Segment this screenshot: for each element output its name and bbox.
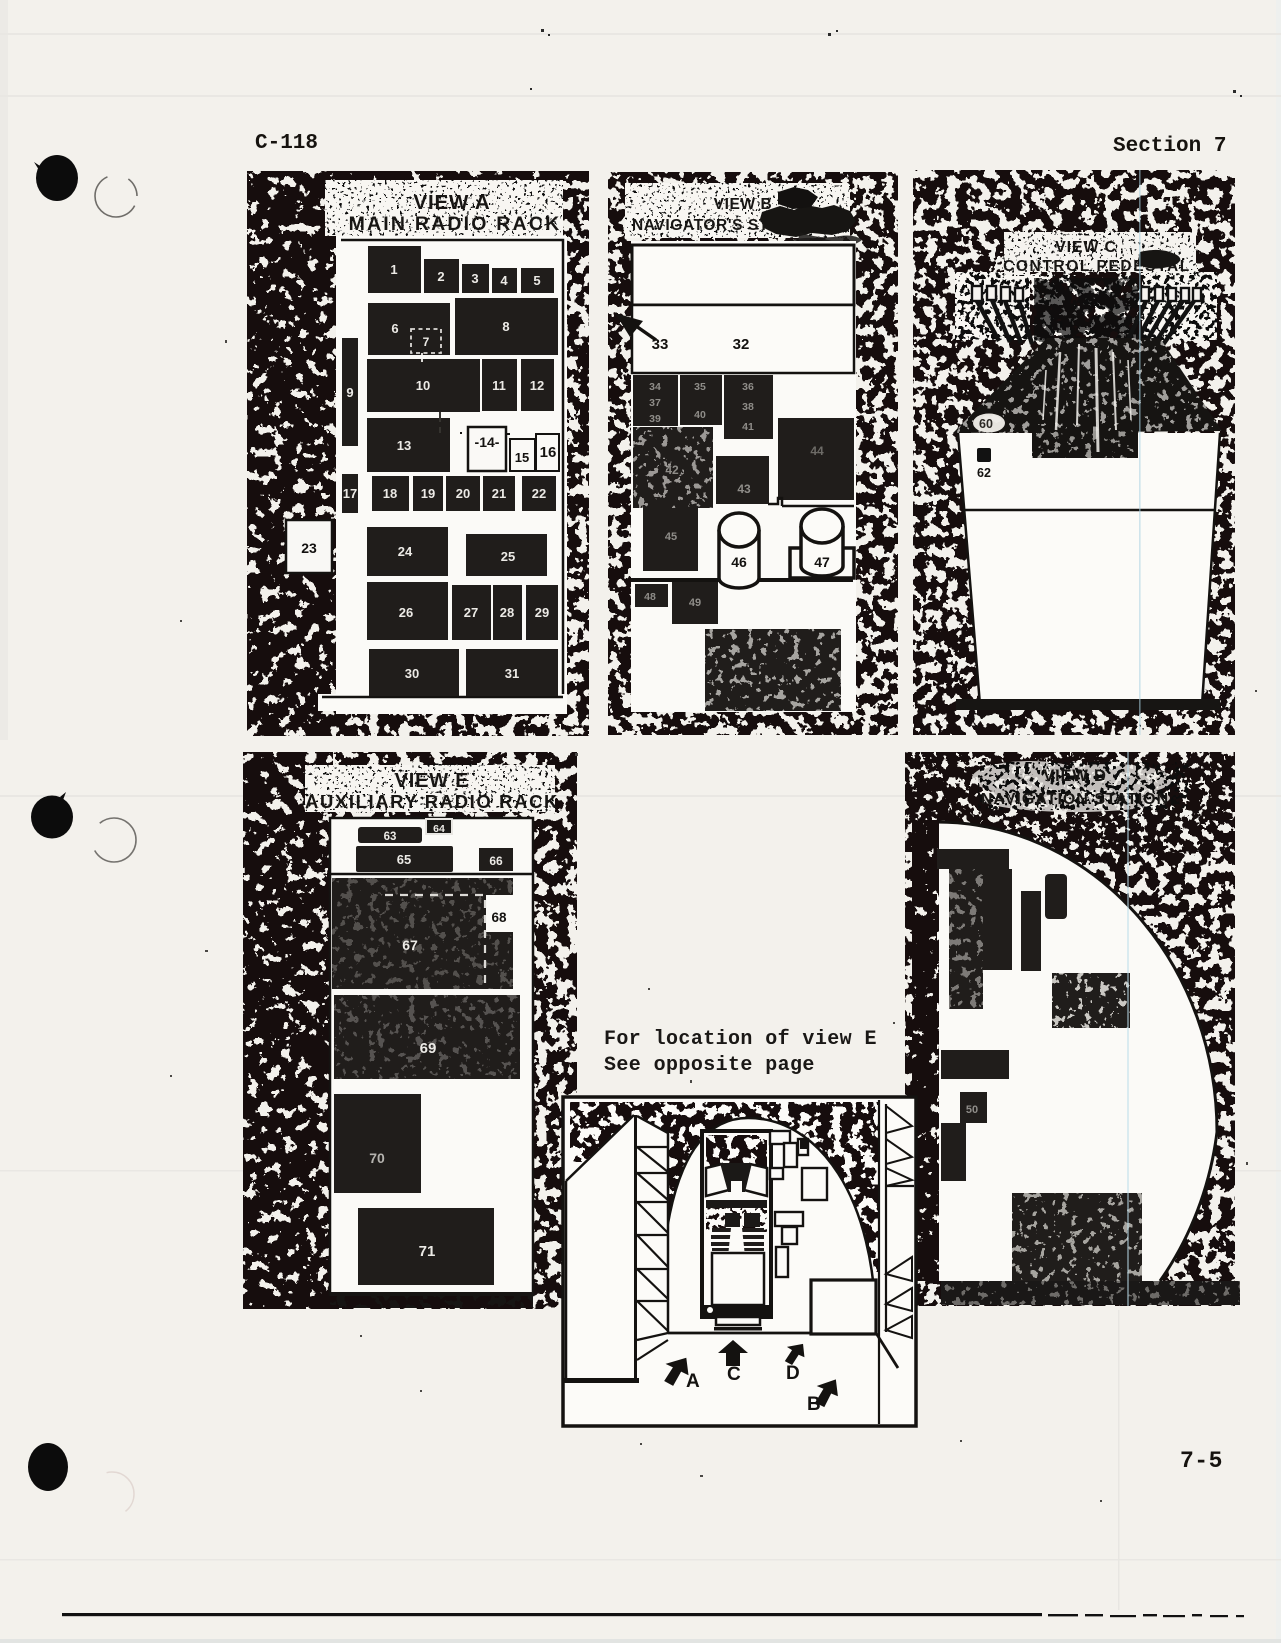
svg-text:38: 38 (742, 401, 754, 413)
svg-text:16: 16 (540, 444, 557, 461)
svg-text:47: 47 (814, 554, 830, 570)
svg-text:21: 21 (492, 486, 506, 501)
svg-text:A: A (686, 1371, 700, 1392)
svg-text:44: 44 (810, 444, 824, 458)
svg-text:10: 10 (416, 378, 430, 393)
svg-text:NAVIGATION STATION: NAVIGATION STATION (981, 791, 1169, 808)
svg-text:31: 31 (505, 666, 519, 681)
svg-text:40: 40 (694, 409, 706, 421)
svg-text:5: 5 (533, 273, 540, 288)
svg-text:67: 67 (402, 937, 418, 953)
svg-text:7-5: 7-5 (1180, 1448, 1223, 1474)
svg-text:C-118: C-118 (255, 132, 318, 155)
svg-text:13: 13 (397, 438, 411, 453)
svg-text:8: 8 (502, 319, 509, 334)
svg-text:VIEW B: VIEW B (714, 196, 773, 213)
svg-text:48: 48 (644, 591, 656, 603)
svg-text:2: 2 (437, 269, 444, 284)
svg-text:41: 41 (742, 421, 754, 433)
svg-text:64: 64 (433, 823, 445, 835)
svg-text:VIEW A: VIEW A (414, 191, 491, 214)
svg-text:66: 66 (489, 854, 503, 868)
svg-text:42: 42 (665, 463, 679, 477)
svg-text:26: 26 (399, 605, 413, 620)
svg-text:1: 1 (390, 262, 397, 277)
svg-text:27: 27 (464, 605, 478, 620)
svg-text:VIEW E: VIEW E (395, 770, 470, 792)
svg-text:28: 28 (500, 605, 514, 620)
svg-text:43: 43 (737, 482, 751, 496)
svg-text:68: 68 (491, 910, 507, 925)
svg-text:9: 9 (346, 385, 353, 400)
svg-text:34: 34 (649, 381, 661, 393)
svg-text:MAIN RADIO RACK: MAIN RADIO RACK (349, 213, 562, 235)
svg-text:37: 37 (649, 397, 661, 409)
svg-text:18: 18 (383, 486, 397, 501)
svg-text:15: 15 (515, 450, 529, 465)
svg-text:23: 23 (301, 540, 317, 556)
svg-text:11: 11 (492, 378, 506, 393)
svg-text:4: 4 (500, 273, 508, 288)
svg-text:3: 3 (471, 271, 478, 286)
svg-text:69: 69 (420, 1040, 437, 1057)
svg-text:B: B (807, 1394, 821, 1415)
svg-text:For location of view E: For location of view E (604, 1028, 877, 1051)
svg-text:65: 65 (397, 852, 411, 867)
svg-text:36: 36 (742, 381, 754, 393)
svg-text:39: 39 (649, 413, 661, 425)
svg-text:20: 20 (456, 486, 470, 501)
svg-text:12: 12 (530, 378, 544, 393)
svg-text:19: 19 (421, 486, 435, 501)
svg-text:7: 7 (423, 335, 430, 349)
svg-text:29: 29 (535, 605, 549, 620)
svg-text:C: C (727, 1364, 741, 1385)
svg-text:-14-: -14- (475, 434, 500, 450)
svg-text:46: 46 (731, 554, 747, 570)
svg-text:6: 6 (391, 321, 398, 336)
svg-text:70: 70 (369, 1150, 385, 1166)
svg-text:60: 60 (979, 417, 993, 431)
svg-text:71: 71 (419, 1243, 436, 1260)
svg-text:63: 63 (384, 831, 397, 843)
svg-text:17: 17 (343, 486, 357, 501)
svg-text:30: 30 (405, 666, 419, 681)
svg-text:32: 32 (733, 336, 750, 353)
svg-text:See opposite page: See opposite page (604, 1054, 815, 1077)
svg-text:35: 35 (694, 381, 706, 393)
svg-text:49: 49 (689, 597, 701, 609)
svg-text:24: 24 (398, 544, 413, 559)
svg-text:62: 62 (977, 466, 991, 480)
svg-text:VIEW D: VIEW D (1043, 767, 1106, 785)
svg-text:VIEW C: VIEW C (1055, 239, 1117, 256)
svg-text:50: 50 (966, 1104, 978, 1116)
svg-text:AUXILIARY RADIO RACK: AUXILIARY RADIO RACK (305, 791, 559, 812)
svg-text:Section 7: Section 7 (1113, 135, 1226, 158)
svg-text:25: 25 (501, 549, 515, 564)
svg-text:D: D (786, 1363, 800, 1384)
svg-text:45: 45 (665, 531, 677, 543)
svg-text:22: 22 (532, 486, 546, 501)
